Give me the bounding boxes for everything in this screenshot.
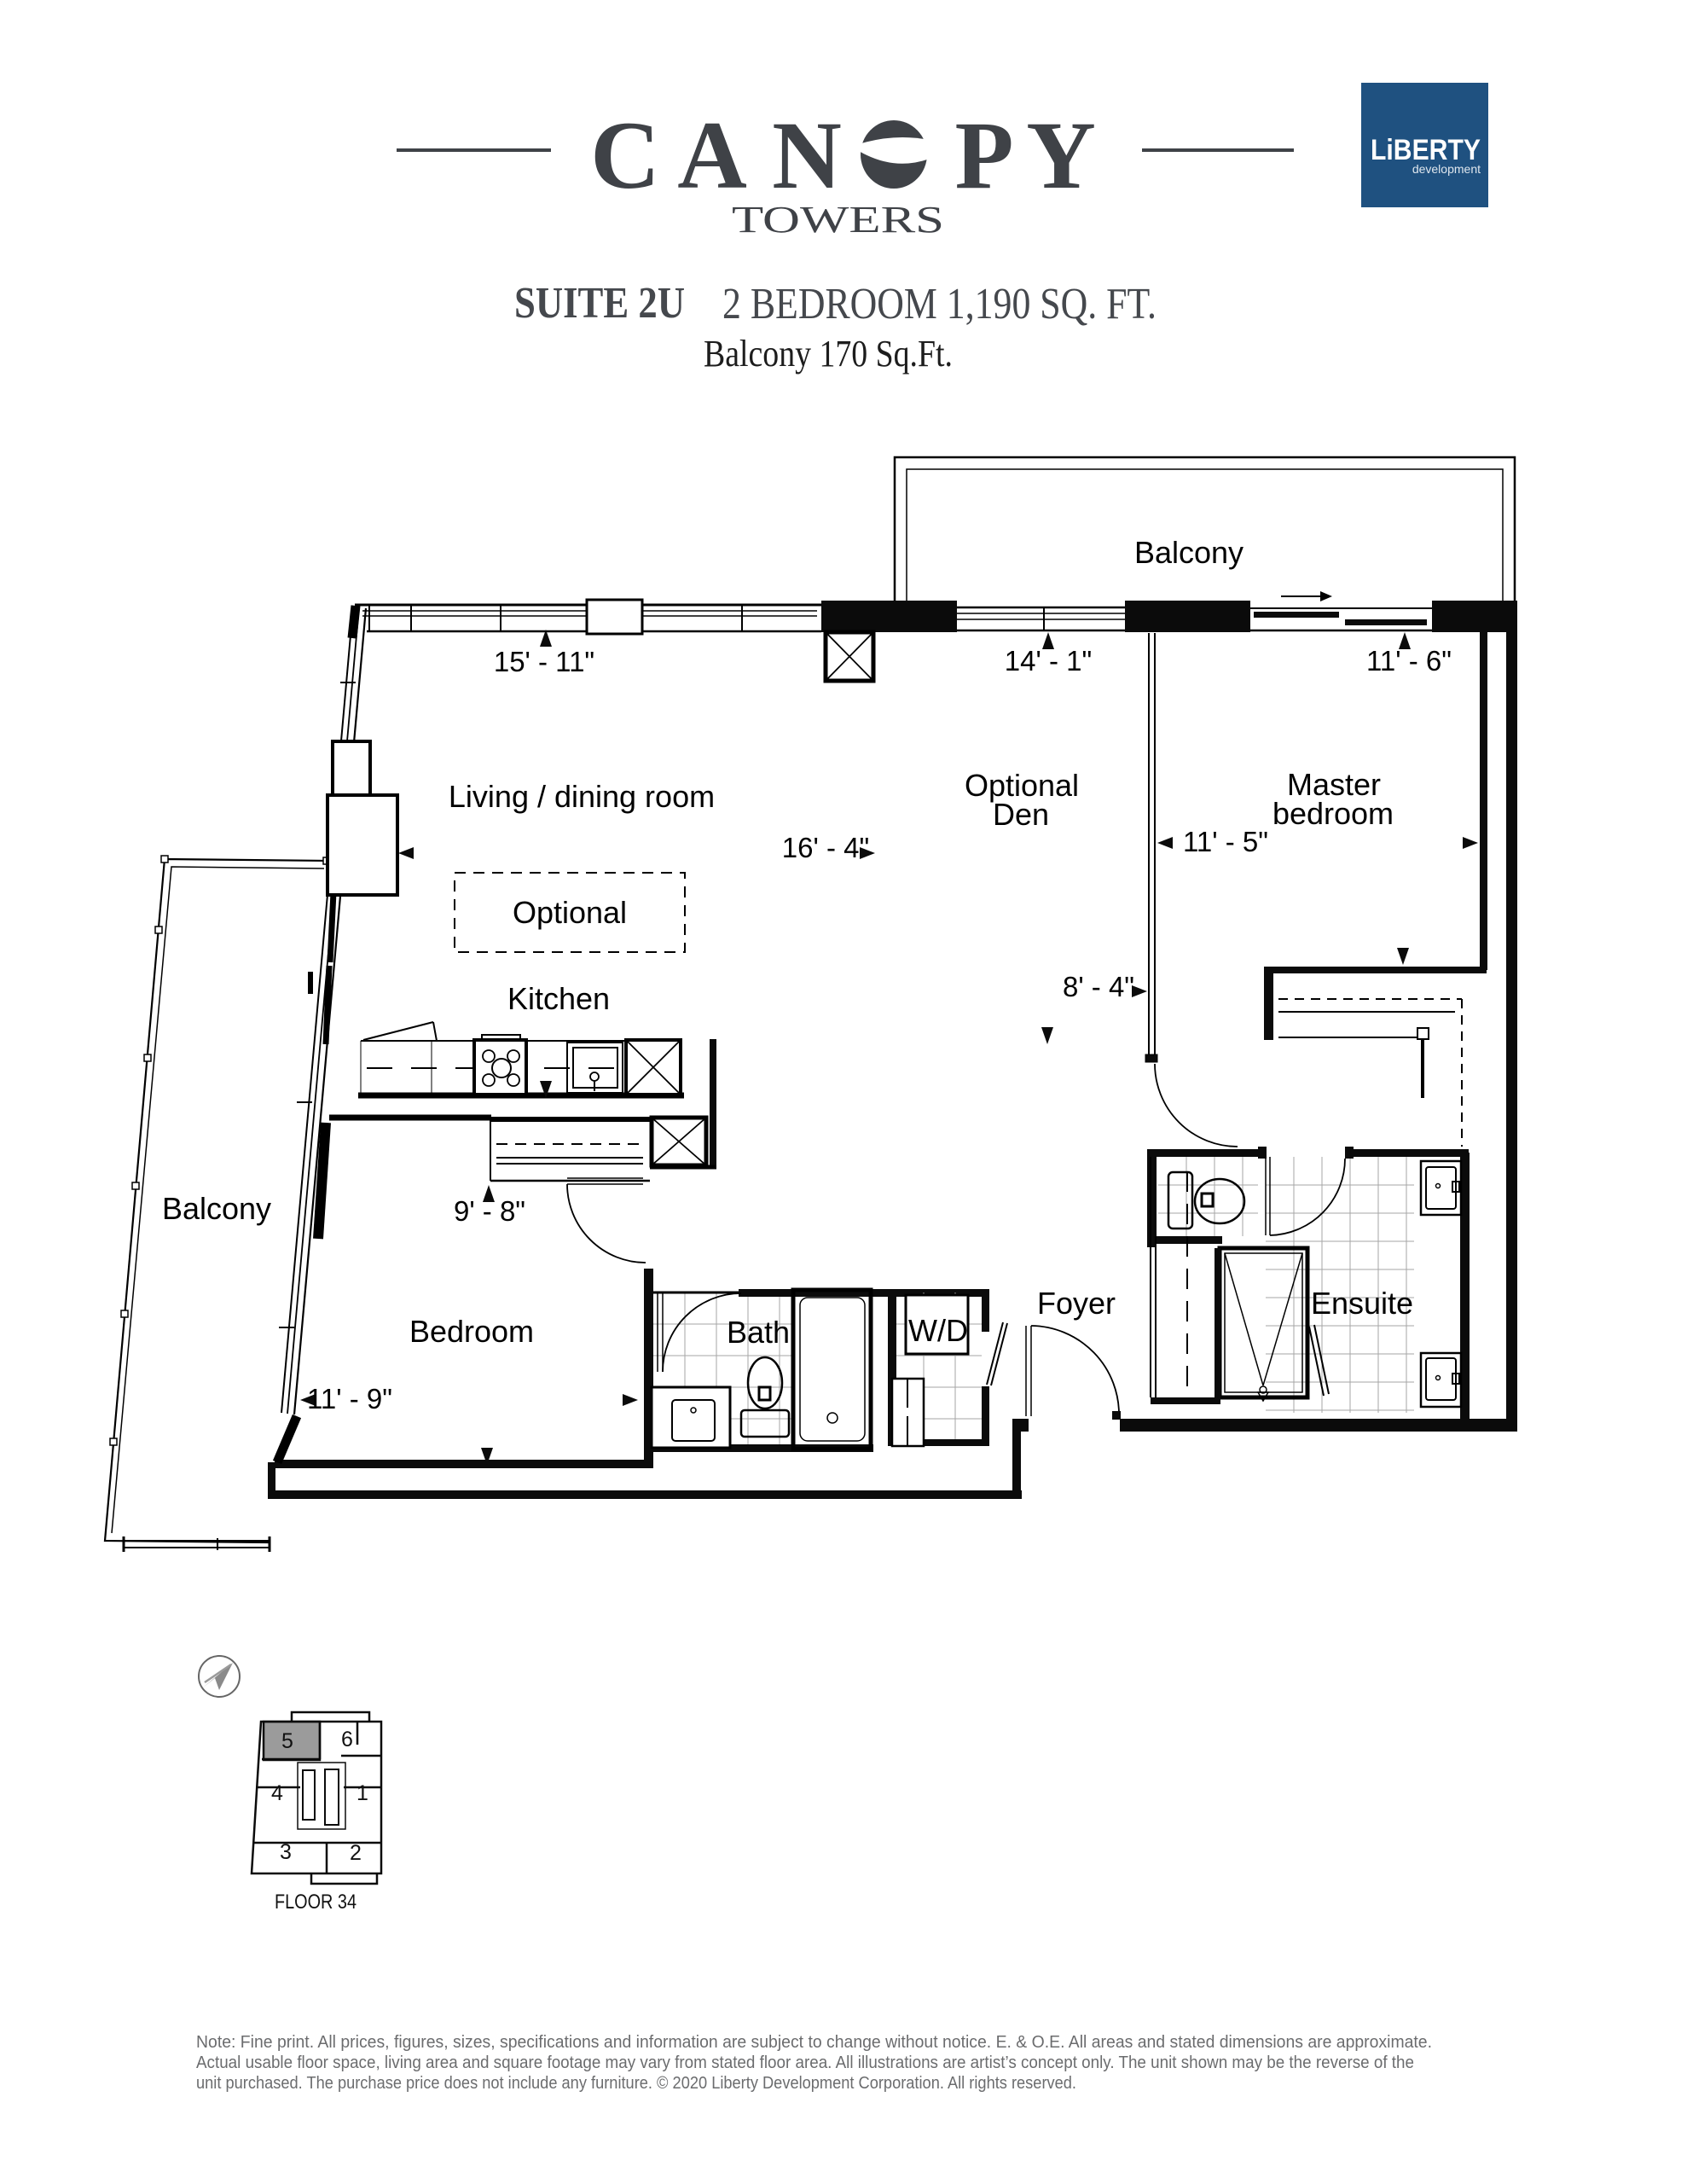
svg-text:Optional: Optional	[513, 895, 627, 930]
svg-text:N: N	[772, 102, 842, 209]
svg-text:Foyer: Foyer	[1037, 1286, 1116, 1321]
svg-text:Y: Y	[1026, 102, 1096, 209]
svg-text:A: A	[677, 102, 747, 209]
svg-text:Bath: Bath	[727, 1315, 790, 1350]
svg-text:Kitchen: Kitchen	[507, 981, 610, 1016]
svg-text:SUITE 2U: SUITE 2U	[514, 279, 685, 328]
svg-text:Den: Den	[993, 797, 1049, 832]
svg-text:2 BEDROOM 1,190 SQ. FT.: 2 BEDROOM 1,190 SQ. FT.	[722, 280, 1157, 328]
svg-text:C: C	[590, 102, 660, 209]
svg-text:P: P	[954, 102, 1013, 209]
svg-text:Bedroom: Bedroom	[409, 1314, 534, 1349]
svg-text:Ensuite: Ensuite	[1311, 1286, 1413, 1321]
svg-text:FLOOR 34: FLOOR 34	[275, 1891, 357, 1914]
svg-text:5: 5	[281, 1729, 293, 1753]
svg-text:Balcony: Balcony	[162, 1191, 271, 1226]
svg-text:W/D: W/D	[908, 1313, 968, 1348]
svg-text:unit purchased. The purchase p: unit purchased. The purchase price does …	[196, 2073, 1076, 2093]
svg-text:TOWERS: TOWERS	[732, 199, 944, 241]
svg-text:1: 1	[357, 1781, 368, 1805]
svg-text:Balcony: Balcony	[1134, 535, 1244, 570]
svg-text:2: 2	[350, 1841, 362, 1865]
svg-text:4: 4	[271, 1781, 283, 1805]
svg-text:Note: Fine print. All prices,: Note: Fine print. All prices, figures, s…	[196, 2032, 1432, 2052]
svg-text:Balcony 170 Sq.Ft.: Balcony 170 Sq.Ft.	[704, 333, 953, 375]
svg-text:11' - 6": 11' - 6"	[1366, 645, 1452, 677]
svg-text:8' - 4": 8' - 4"	[1063, 971, 1134, 1002]
svg-text:development: development	[1412, 162, 1481, 176]
svg-text:6: 6	[341, 1728, 353, 1751]
svg-text:14' - 1": 14' - 1"	[1005, 645, 1092, 677]
svg-text:Living / dining room: Living / dining room	[449, 779, 715, 814]
svg-text:11' - 9": 11' - 9"	[307, 1383, 392, 1414]
svg-text:9' - 8": 9' - 8"	[454, 1195, 525, 1227]
svg-text:Actual usable floor space, liv: Actual usable floor space, living area a…	[196, 2053, 1414, 2072]
svg-text:3: 3	[280, 1840, 292, 1864]
svg-text:bedroom: bedroom	[1272, 796, 1394, 831]
svg-text:15' - 11": 15' - 11"	[494, 646, 594, 677]
svg-text:11' - 5": 11' - 5"	[1183, 826, 1268, 857]
svg-text:16' - 4": 16' - 4"	[782, 832, 869, 863]
